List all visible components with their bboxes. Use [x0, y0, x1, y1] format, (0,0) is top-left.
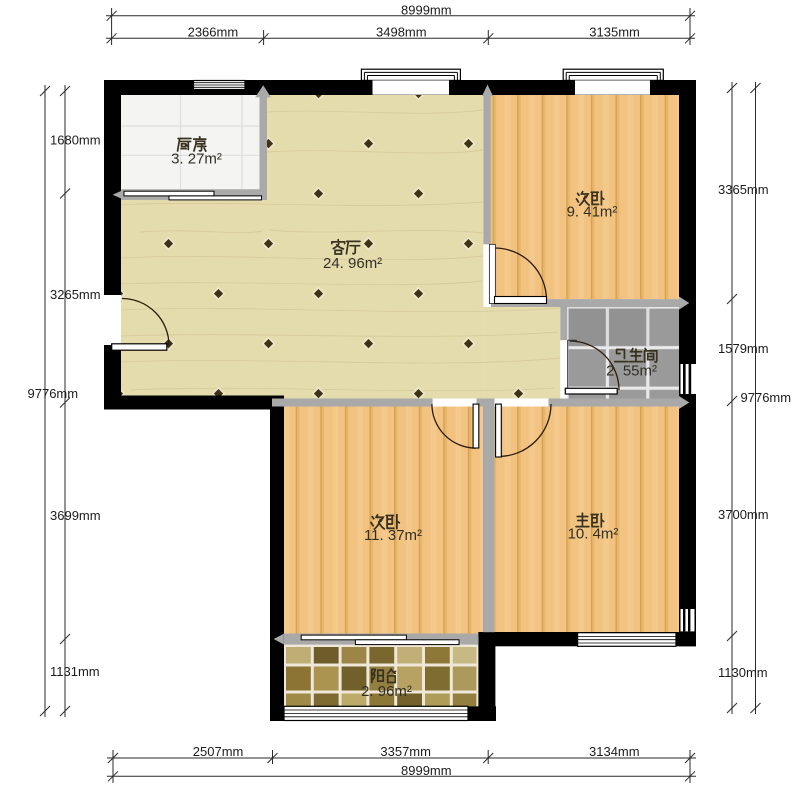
svg-text:2507mm: 2507mm [193, 744, 244, 759]
svg-text:1680mm: 1680mm [50, 133, 101, 148]
svg-text:3134mm: 3134mm [589, 744, 640, 759]
svg-text:2. 96m²: 2. 96m² [361, 683, 412, 700]
svg-text:3357mm: 3357mm [380, 744, 431, 759]
svg-text:10. 4m²: 10. 4m² [568, 526, 619, 543]
svg-text:24. 96m²: 24. 96m² [323, 255, 382, 272]
svg-text:8999mm: 8999mm [401, 3, 452, 18]
svg-text:3498mm: 3498mm [376, 25, 427, 40]
svg-text:3365mm: 3365mm [718, 182, 769, 197]
svg-text:3. 27m²: 3. 27m² [171, 151, 222, 168]
svg-text:3265mm: 3265mm [50, 287, 101, 302]
svg-text:3699mm: 3699mm [50, 508, 101, 523]
svg-text:8999mm: 8999mm [401, 763, 452, 778]
svg-text:9776mm: 9776mm [741, 390, 792, 405]
svg-text:3135mm: 3135mm [589, 25, 640, 40]
svg-text:9776mm: 9776mm [28, 386, 79, 401]
svg-text:11. 37m²: 11. 37m² [364, 527, 422, 544]
svg-text:1131mm: 1131mm [50, 664, 100, 679]
svg-text:3700mm: 3700mm [718, 507, 769, 522]
svg-text:2366mm: 2366mm [188, 25, 239, 40]
svg-text:1130mm: 1130mm [718, 665, 768, 680]
svg-text:1579mm: 1579mm [718, 341, 769, 356]
svg-text:9. 41m²: 9. 41m² [567, 204, 618, 221]
svg-text:2. 55m²: 2. 55m² [606, 363, 657, 380]
